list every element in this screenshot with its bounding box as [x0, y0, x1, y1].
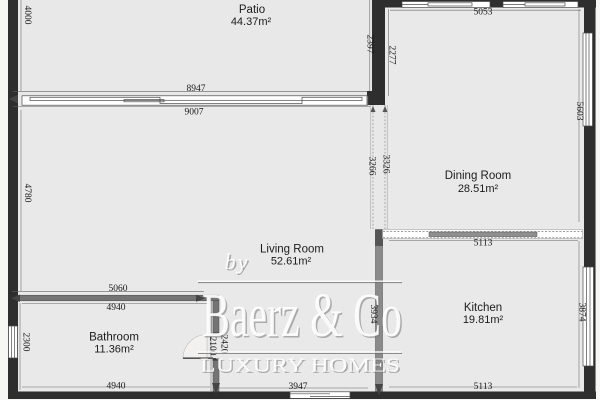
svg-text:4940: 4940	[107, 382, 126, 392]
svg-text:3266: 3266	[367, 157, 377, 176]
svg-text:3326: 3326	[381, 155, 391, 174]
svg-text:5113: 5113	[474, 239, 493, 249]
svg-text:Living Room: Living Room	[260, 244, 324, 256]
svg-text:Bathroom: Bathroom	[89, 332, 139, 344]
svg-text:5113: 5113	[474, 382, 493, 392]
svg-text:4940: 4940	[107, 303, 126, 313]
svg-text:5603: 5603	[574, 102, 584, 121]
svg-text:4780: 4780	[22, 184, 32, 203]
svg-text:52.61m²: 52.61m²	[271, 256, 312, 268]
svg-text:5053: 5053	[474, 8, 493, 18]
svg-text:11.36m²: 11.36m²	[94, 344, 134, 356]
svg-text:28.51m²: 28.51m²	[458, 183, 499, 195]
svg-text:4000: 4000	[22, 6, 32, 25]
svg-text:by: by	[225, 249, 250, 274]
svg-text:44.37m²: 44.37m²	[231, 16, 272, 28]
svg-text:9007: 9007	[185, 108, 204, 118]
svg-text:3947: 3947	[289, 382, 308, 392]
svg-text:2300: 2300	[21, 333, 31, 352]
svg-text:5060: 5060	[109, 284, 128, 294]
svg-text:3874: 3874	[577, 303, 587, 322]
svg-text:Dining Room: Dining Room	[445, 170, 511, 182]
svg-text:19.81m²: 19.81m²	[463, 314, 504, 326]
svg-text:2277: 2277	[387, 46, 397, 65]
svg-text:2397: 2397	[365, 35, 375, 54]
svg-text:Patio: Patio	[239, 4, 265, 16]
svg-text:8947: 8947	[187, 84, 206, 94]
svg-text:LUXURY HOMES: LUXURY HOMES	[200, 356, 400, 377]
svg-text:Baerz & Co: Baerz & Co	[202, 282, 402, 350]
svg-text:Kitchen: Kitchen	[464, 302, 502, 314]
